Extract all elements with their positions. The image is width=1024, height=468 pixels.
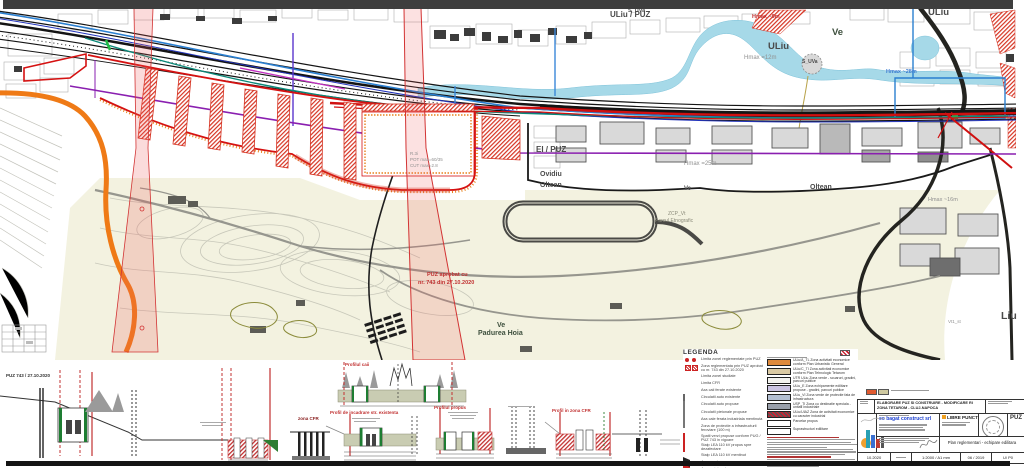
map-label-suva: S_UVa <box>802 60 818 65</box>
map-label-puz-line2: nr. 743 din 27.10.2020 <box>418 281 474 287</box>
profile-existing-street <box>326 414 417 460</box>
extra-swatch-text-bar <box>891 390 929 391</box>
map-label-cut: CUT max=2.8 <box>410 164 438 169</box>
zone-swatch-row: UTR ULiu Zona verde - scuaruri, gradini,… <box>767 377 858 384</box>
map-label-hmax16: Hmax ~16m <box>928 198 958 204</box>
orange-line-icon <box>683 381 699 387</box>
plan-title-cell: Plan reglementari - echipare edilitara <box>940 437 1024 452</box>
map-label-hmax25: Hmax =25m <box>684 161 717 167</box>
legend-item: Limita zonei reglementate prin PUZ <box>683 357 767 363</box>
legend: LEGENDA Limita zonei reglementate prin P… <box>683 349 858 462</box>
legend-corner-chip <box>840 350 850 356</box>
map-label-uliu-ne: ULiu <box>928 8 949 18</box>
plan-code: PUZ <box>1010 415 1022 421</box>
bottom-dark-bar <box>6 461 1010 466</box>
extra-swatch-tan <box>878 389 889 395</box>
title-block: ELABORARE PUZ SI CONSTRUIRE - MODIFICARE… <box>857 399 1024 464</box>
pedestrian-icon <box>683 410 699 416</box>
zone-swatch <box>767 428 791 435</box>
project-number-cell <box>986 400 1024 413</box>
legend-item: Zona de protectie a infrastructurii fero… <box>683 424 767 432</box>
legend-item: Spatii verzi propuse conform PUG / PUZ 7… <box>683 434 767 442</box>
zone-swatch-row: Parcelar propus <box>767 420 858 427</box>
legend-item: Circulatii auto propuse <box>683 402 767 408</box>
map-label-ve-mid: Ve <box>684 186 691 192</box>
legend-item: Limita zonei studiate <box>683 374 767 380</box>
signature-squiggle <box>917 437 939 451</box>
road-existing-icon <box>683 395 699 401</box>
map-label-padurea: Padurea Hoia <box>478 330 523 337</box>
zone-swatch-row: ULiu/A_TL Zona activitati economice conf… <box>767 359 858 366</box>
legend-item: Stalp LEA 110 kV propus spre dezafectare <box>683 443 767 451</box>
map-label-hmax9: Hmax ~9m <box>752 15 780 21</box>
zone-swatch <box>767 385 791 392</box>
map-label-uliu-puz: ULiu / PUZ <box>610 11 650 19</box>
profile-zona-cfr: zona CFR <box>298 417 319 422</box>
partner-logo-dot <box>942 415 946 419</box>
legend-item: Axa caii ferate existente <box>683 388 767 394</box>
map-label-zcp-name: Parcul Etnografic <box>655 219 693 224</box>
project-title-line2: ZONA TETAROM - CLUJ-NAPOCA <box>877 406 983 411</box>
legend-item: Stalp LEA 110 kV mentinut <box>683 453 767 459</box>
logo-bar-blue <box>871 435 875 448</box>
title-block-project-row: ELABORARE PUZ SI CONSTRUIRE - MODIFICARE… <box>858 400 1024 414</box>
zone-swatch <box>767 403 791 410</box>
pole-removed-icon <box>683 443 699 449</box>
map-label-puz-line1: PUZ aprobat cu <box>427 273 468 279</box>
legend-title: LEGENDA <box>683 349 858 356</box>
profile-caption-2: Profilul propus <box>434 406 466 411</box>
profile-caption-3: Profil in zona CFR <box>552 409 591 414</box>
map-label-ovidiu: Ovidiu <box>540 171 562 178</box>
legend-item: Circulatii pietonale propuse <box>683 410 767 416</box>
map-label-zcp-code: ZCP_Vt <box>668 212 686 217</box>
profile-proposed <box>436 408 494 458</box>
profile-caption-1: Profil de incadrare str. existenta <box>330 411 398 416</box>
zone-swatch-row: ULiu/C_TI Zona activitati economice conf… <box>767 368 858 375</box>
legend-item: Circulatii auto existente <box>683 395 767 401</box>
zone-swatch <box>767 394 791 401</box>
plan-code-cell: PUZ <box>1008 414 1024 436</box>
road-proposed-icon <box>683 402 699 408</box>
zone-swatch-row: ULiu_E Zona echipamente edilitare propus… <box>767 385 858 392</box>
profile-ladders <box>506 406 546 454</box>
zone-swatch <box>767 377 791 384</box>
legend-item: Zona reglementata prin PUZ aprobat cu nr… <box>683 364 767 372</box>
legend-item: Axa cale ferata industriala mentinuta <box>683 417 767 423</box>
map-label-liu: Liu <box>1001 311 1017 322</box>
zone-swatch-row: ULiu_VI Zona verde de protectie fata de … <box>767 394 858 401</box>
map-label-oltean-e: Oltean <box>810 184 832 191</box>
puz-approved-icon <box>683 364 699 370</box>
zone-swatch-hatched <box>767 411 791 418</box>
puz-limit-icon <box>683 357 699 363</box>
logo-bar-teal <box>866 430 870 448</box>
legend-right-column: ULiu/A_TL Zona activitati economice conf… <box>767 357 858 468</box>
map-label-hmax12: Hmax =12m <box>744 55 777 61</box>
profile-top-middle <box>338 362 466 406</box>
map-canvas <box>0 8 1016 360</box>
designer-cell: eo bagat construct srl <box>877 414 940 436</box>
mini-table <box>2 325 46 352</box>
plan-sheet: S_UVa ULiu / PUZ Hmax ~9m ULiu Ve ULiu H… <box>0 0 1024 468</box>
zone-swatch-row: Suprastructuri edilitare <box>767 428 858 435</box>
map-label-uliu-mid: ULiu <box>768 42 789 52</box>
map-label-ve-park: Ve <box>497 322 505 329</box>
project-title-cell: ELABORARE PUZ SI CONSTRUIRE - MODIFICARE… <box>875 400 986 413</box>
map-label-vt1: Vt1_st <box>948 320 961 325</box>
map-label-r3i: R.3i <box>410 152 418 157</box>
profile-long-section <box>0 368 330 460</box>
profile-cfr-zone <box>545 410 680 458</box>
profile-note: PUZ 743 / 27.10.2020 <box>6 374 50 379</box>
darkblue-line-icon <box>683 424 699 430</box>
map-label-pot: POT max=60/35 <box>410 158 443 163</box>
zone-swatch-row: ULiu/UIAZ Zona de activitati economice c… <box>767 411 858 418</box>
project-title-line1: ELABORARE PUZ SI CONSTRUIRE - MODIFICARE… <box>877 401 983 406</box>
profile-caption-top: Profilul caii <box>345 363 369 368</box>
zone-swatch <box>767 359 791 366</box>
zone-swatch-row: USP_TI Zona cu destinatie speciala - uni… <box>767 403 858 410</box>
map-label-hmax28: Hmax ~28m <box>886 70 917 76</box>
green-area-icon <box>683 434 699 440</box>
top-dark-bar <box>3 0 1013 9</box>
legend-item: Limita CFR <box>683 381 767 387</box>
legend-left-column: Limita zonei reglementate prin PUZ Zona … <box>683 357 767 468</box>
stamp-cell <box>979 414 1008 436</box>
hillside-hatch <box>0 108 62 338</box>
partner-cell: LIBRE PUNCT <box>940 414 979 436</box>
designer-company-name: eo bagat construct srl <box>879 417 937 423</box>
map-label-oltean-w: Oltean <box>540 182 562 189</box>
teal-line-icon <box>683 417 699 423</box>
zone-swatch <box>767 420 791 427</box>
project-label-cell <box>858 400 875 413</box>
red-axis-icon <box>683 388 699 394</box>
partner-company-name: LIBRE PUNCT <box>942 415 976 420</box>
round-stamp <box>982 416 1004 436</box>
blue-line-icon <box>683 374 699 380</box>
map-label-ei-puz: EI / PUZ <box>536 146 566 154</box>
map-label-ve-ne: Ve <box>832 28 843 38</box>
extra-swatch-orange <box>866 389 877 395</box>
plan-title: Plan reglementari - echipare edilitara <box>942 440 1022 445</box>
signatures-cell <box>877 437 940 452</box>
company-logo <box>858 414 877 452</box>
zone-swatch <box>767 368 791 375</box>
